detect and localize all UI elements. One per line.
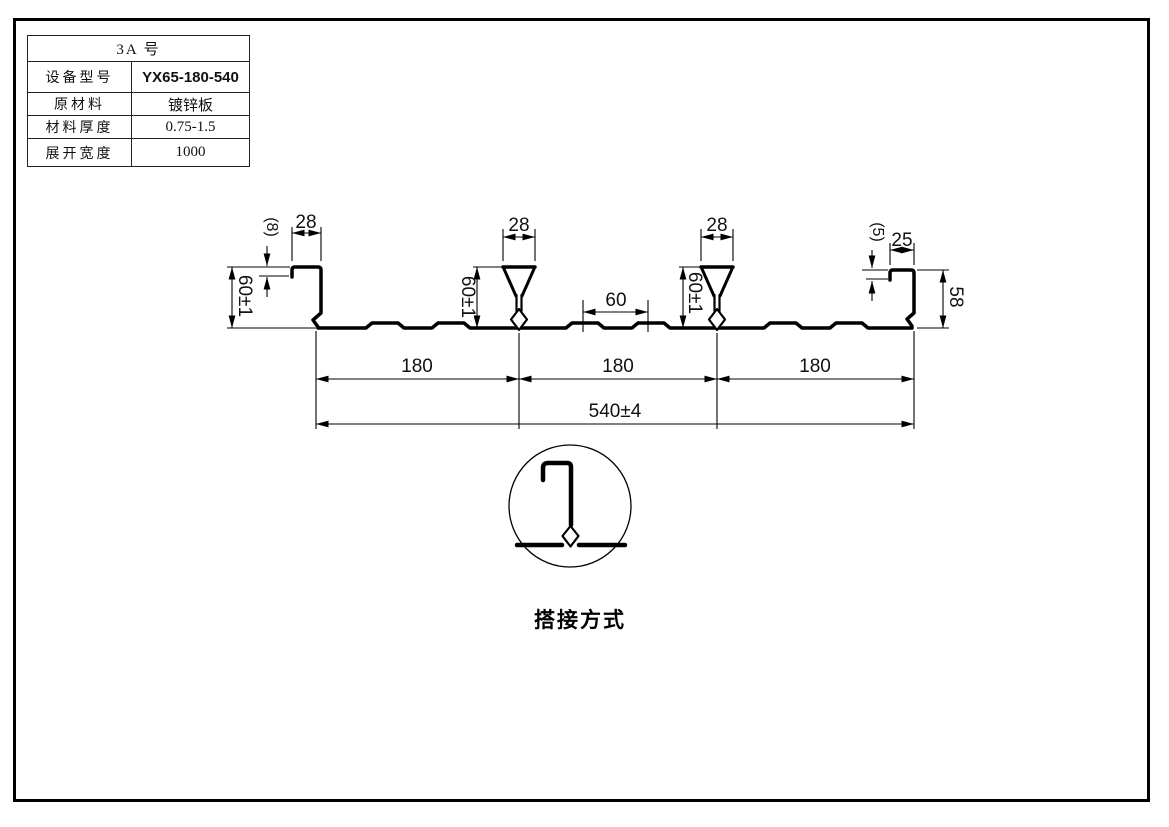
dim-rib1-top: 28 [508,215,529,236]
bottom-flange [318,323,912,328]
dim-right-height: 58 [945,286,966,307]
drawing-page: 3A 号 设备型号 YX65-180-540 原材料 镀锌板 材料厚度 0.75… [0,0,1169,827]
dim-left-lip: (8) [263,217,280,237]
profile-drawing: (8) 28 60±1 28 60±1 60 28 60±1 (5) 25 58… [0,0,1169,827]
dim-rib2-top: 28 [706,215,727,236]
dim-right-lip: (5) [869,222,886,242]
right-edge [890,270,914,326]
profile-outline [292,267,914,330]
dim-pitch-2: 180 [602,356,634,377]
dimension-labels: (8) 28 60±1 28 60±1 60 28 60±1 (5) 25 58… [234,212,966,422]
left-edge [292,267,321,327]
detail-caption: 搭接方式 [520,604,640,634]
dim-pitch-1: 180 [401,356,433,377]
dim-right-top: 25 [891,230,912,251]
dim-overall: 540±4 [589,401,642,422]
dim-rib1-height: 60±1 [457,276,478,318]
dim-pitch-3: 180 [799,356,831,377]
dim-left-height: 60±1 [234,275,255,317]
dim-left-top: 28 [295,212,316,233]
dim-mid-span: 60 [605,290,626,311]
rib-1 [503,267,535,330]
dim-rib2-height: 60±1 [684,272,705,314]
lap-joint-detail [509,445,631,567]
